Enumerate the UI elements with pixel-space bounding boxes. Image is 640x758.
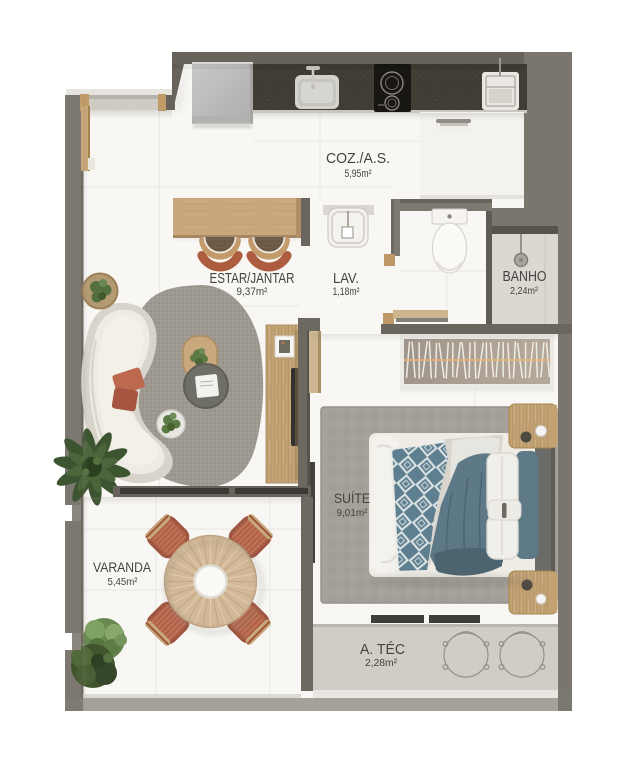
svg-text:ESTAR/JANTAR: ESTAR/JANTAR: [210, 270, 295, 287]
svg-text:5,95m²: 5,95m²: [345, 168, 372, 180]
svg-text:VARANDA: VARANDA: [93, 559, 152, 575]
svg-text:SUÍTE: SUÍTE: [334, 491, 370, 506]
svg-text:A. TÉC: A. TÉC: [360, 641, 405, 658]
svg-text:9,37m²: 9,37m²: [237, 286, 268, 298]
svg-text:2,24m²: 2,24m²: [510, 286, 539, 297]
svg-text:LAV.: LAV.: [333, 270, 359, 287]
svg-text:9,01m²: 9,01m²: [337, 507, 368, 519]
svg-text:BANHO: BANHO: [503, 268, 547, 285]
svg-text:5,45m²: 5,45m²: [108, 577, 139, 588]
svg-text:COZ./A.S.: COZ./A.S.: [326, 150, 390, 167]
svg-text:2,28m²: 2,28m²: [365, 658, 398, 669]
svg-text:1,18m²: 1,18m²: [333, 286, 360, 298]
